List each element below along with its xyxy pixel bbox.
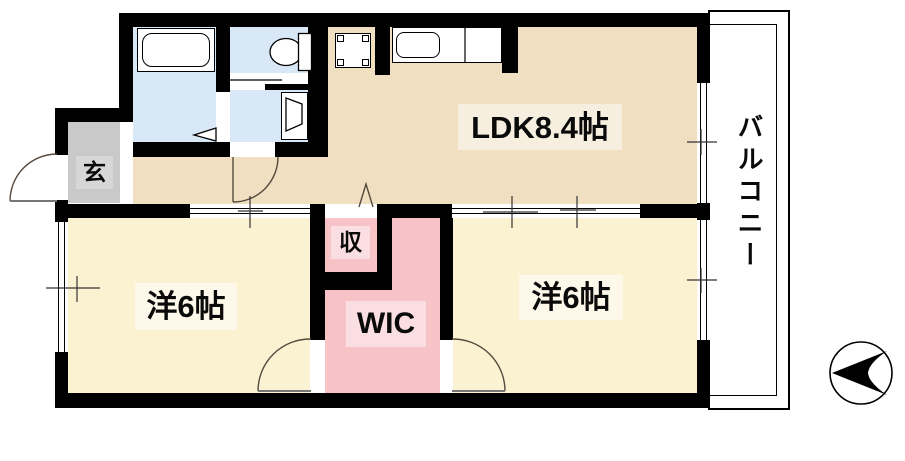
wic-floor-upper bbox=[392, 218, 440, 298]
wall-washblock-bottom-left bbox=[133, 142, 230, 157]
sliding-door-ldk-bedroom-right bbox=[452, 204, 640, 218]
toilet-strip-bar bbox=[265, 84, 308, 90]
wall-mid-1 bbox=[55, 204, 190, 218]
entrance-door-gap bbox=[55, 155, 68, 200]
entrance-label: 玄 bbox=[76, 156, 113, 189]
bathtub-inner bbox=[142, 33, 210, 67]
wall-kitchen-right bbox=[502, 13, 518, 73]
washroom-door-gap bbox=[230, 142, 275, 157]
wall-storage-right bbox=[377, 218, 392, 276]
wall-bath-left bbox=[119, 13, 133, 122]
floor-plan: LDK8.4帖 洋6帖 洋6帖 WIC 収 玄 バルコニー bbox=[0, 0, 905, 461]
wall-bath-toilet bbox=[216, 27, 230, 92]
bath-door-gap bbox=[216, 92, 230, 142]
corner-mark bbox=[362, 35, 369, 42]
storage-label: 収 bbox=[331, 226, 370, 259]
wic-door-gap-right bbox=[440, 340, 453, 393]
window-ldk-balcony bbox=[697, 83, 710, 203]
ldk-label: LDK8.4帖 bbox=[458, 104, 622, 150]
wall-mid-4 bbox=[640, 204, 710, 218]
north-arrow-circle bbox=[830, 342, 892, 404]
vanity-cabinet bbox=[281, 92, 308, 140]
kitchen-sink bbox=[396, 32, 440, 58]
north-arrow-icon bbox=[832, 351, 887, 395]
wall-right-3 bbox=[697, 340, 710, 396]
corner-mark bbox=[337, 35, 344, 42]
sliding-door-ldk-bedroom-left bbox=[190, 204, 310, 218]
toilet-room-floor bbox=[230, 27, 308, 73]
wall-bottom bbox=[55, 393, 710, 408]
wic-label: WIC bbox=[346, 301, 426, 347]
washing-machine-space bbox=[335, 33, 371, 68]
balcony-label: バルコニー bbox=[731, 113, 768, 313]
corner-mark bbox=[337, 59, 344, 66]
entrance-step-strip bbox=[120, 122, 133, 203]
corner-mark bbox=[362, 59, 369, 66]
hallway-floor bbox=[133, 157, 328, 204]
wall-left-3 bbox=[55, 352, 68, 397]
wall-right-1 bbox=[697, 13, 710, 83]
wic-door-gap-left bbox=[310, 340, 325, 393]
wall-top bbox=[119, 13, 710, 27]
wall-kitchen-left bbox=[375, 13, 390, 75]
entrance-door-arc bbox=[10, 154, 57, 201]
wall-washblock-right bbox=[308, 13, 328, 157]
wall-left-1 bbox=[55, 108, 68, 155]
wall-mid-2 bbox=[310, 204, 325, 218]
storage-door-gap bbox=[325, 204, 377, 218]
bedroom-left-label: 洋6帖 bbox=[135, 283, 237, 330]
bedroom-right-label: 洋6帖 bbox=[519, 275, 623, 320]
window-left-bedroom bbox=[55, 222, 68, 352]
window-bedroom-right-balcony bbox=[697, 220, 710, 340]
wall-wic-right bbox=[440, 218, 453, 340]
wall-mid-3 bbox=[377, 204, 452, 218]
